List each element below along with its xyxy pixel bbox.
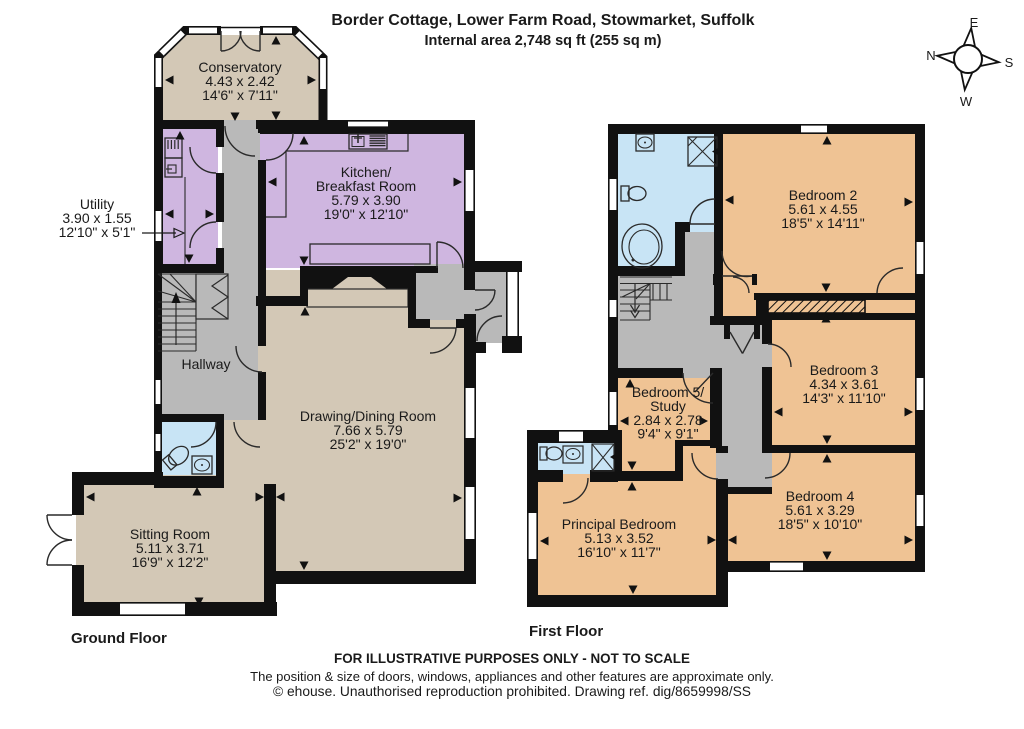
svg-text:25'2" x 19'0": 25'2" x 19'0" <box>330 436 407 452</box>
svg-text:Internal area 2,748 sq ft (255: Internal area 2,748 sq ft (255 sq m) <box>425 33 662 49</box>
svg-text:18'5" x 14'11": 18'5" x 14'11" <box>781 215 865 231</box>
svg-text:© ehouse. Unauthorised reprodu: © ehouse. Unauthorised reproduction proh… <box>273 684 751 699</box>
svg-text:Border Cottage, Lower Farm Roa: Border Cottage, Lower Farm Road, Stowmar… <box>331 12 754 29</box>
svg-text:12'10" x 5'1": 12'10" x 5'1" <box>59 224 136 240</box>
svg-text:14'6" x 7'11": 14'6" x 7'11" <box>202 87 278 103</box>
svg-text:N: N <box>926 48 935 63</box>
svg-text:18'5" x 10'10": 18'5" x 10'10" <box>778 516 863 532</box>
svg-text:14'3" x 11'10": 14'3" x 11'10" <box>802 390 886 406</box>
svg-text:9'4" x 9'1": 9'4" x 9'1" <box>637 426 698 442</box>
svg-text:W: W <box>960 94 973 109</box>
svg-text:The position & size of doors,: The position & size of doors, windows, a… <box>250 669 774 684</box>
svg-text:19'0" x 12'10": 19'0" x 12'10" <box>324 206 409 222</box>
svg-text:E: E <box>970 15 979 30</box>
svg-text:FOR ILLUSTRATIVE PURPOSES ONLY: FOR ILLUSTRATIVE PURPOSES ONLY - NOT TO … <box>334 651 690 666</box>
svg-text:Hallway: Hallway <box>181 356 230 372</box>
svg-text:S: S <box>1005 55 1014 70</box>
svg-text:Ground Floor: Ground Floor <box>71 630 167 647</box>
svg-text:First Floor: First Floor <box>529 623 603 640</box>
svg-text:16'9" x 12'2": 16'9" x 12'2" <box>132 554 209 570</box>
svg-text:16'10" x 11'7": 16'10" x 11'7" <box>577 544 661 560</box>
